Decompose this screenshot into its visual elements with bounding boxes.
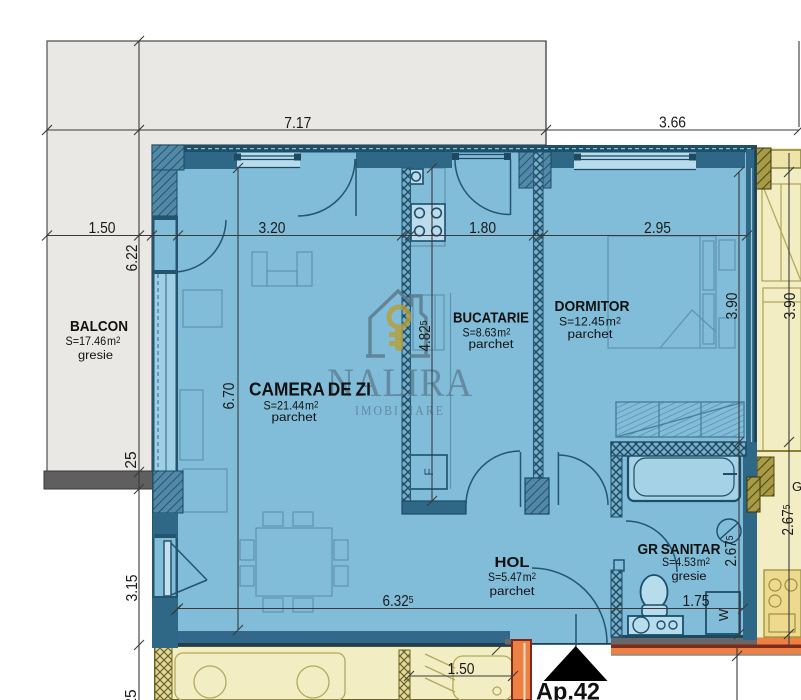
svg-text:3.90: 3.90 [724,292,741,319]
svg-text:7.17: 7.17 [284,115,311,132]
svg-text:parchet: parchet [272,410,318,424]
svg-text:6.22: 6.22 [124,245,141,272]
svg-text:parchet: parchet [568,327,614,341]
svg-text:1.80: 1.80 [469,220,496,237]
svg-text:1.75: 1.75 [683,593,710,610]
svg-text:3.20: 3.20 [259,220,286,237]
svg-text:S=5.47m2: S=5.47m2 [488,570,536,584]
svg-text:3.15: 3.15 [124,575,141,602]
svg-text:BALCON: BALCON [70,318,128,335]
svg-text:6.70: 6.70 [221,382,238,409]
svg-text:25: 25 [123,689,140,700]
svg-text:2.95: 2.95 [644,220,671,237]
svg-text:BUCATARIE: BUCATARIE [453,310,529,327]
svg-text:gresie: gresie [672,569,707,583]
svg-text:HOL: HOL [495,554,530,571]
svg-text:3.66: 3.66 [659,115,686,132]
svg-text:25: 25 [123,451,140,468]
svg-text:Ap.42: Ap.42 [536,679,600,700]
svg-text:parchet: parchet [490,584,536,598]
svg-text:1.50: 1.50 [448,661,475,678]
svg-text:W: W [716,608,731,621]
svg-text:gresie: gresie [78,348,113,362]
svg-text:F: F [422,468,436,475]
svg-text:3.90: 3.90 [782,292,799,319]
svg-text:1.50: 1.50 [89,220,116,237]
svg-text:S=17.46m2: S=17.46m2 [66,334,121,348]
svg-text:DORMITOR: DORMITOR [555,298,630,315]
svg-text:parchet: parchet [469,337,515,351]
svg-text:G: G [792,479,801,494]
svg-text:S=4.53m2: S=4.53m2 [662,555,710,569]
